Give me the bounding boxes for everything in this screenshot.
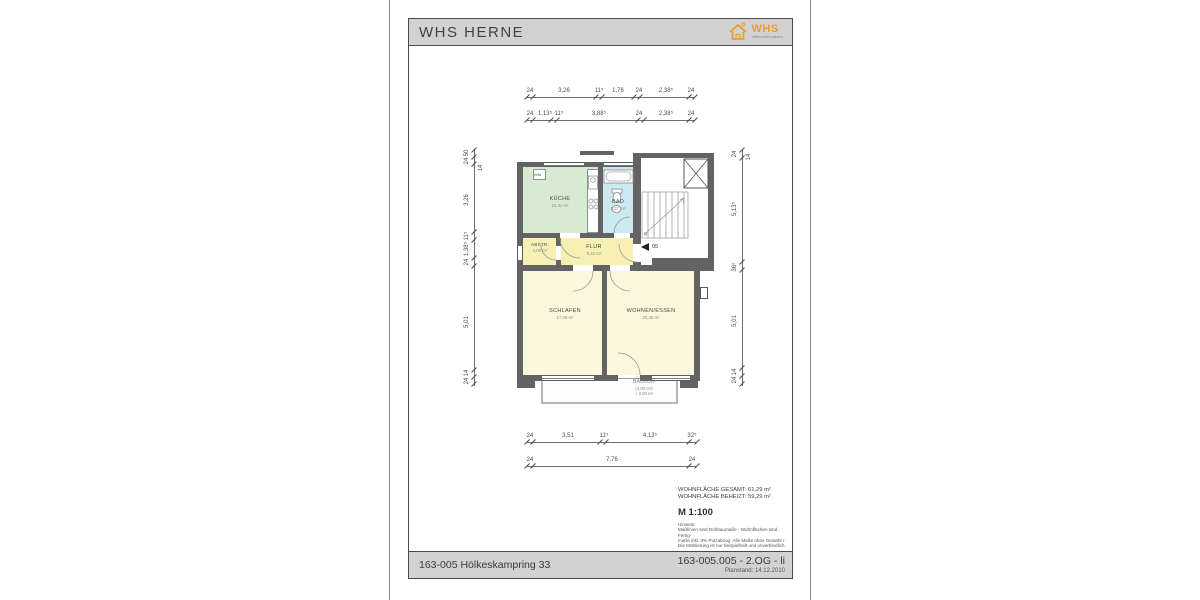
dim-line: [527, 442, 697, 443]
door-arcs: [541, 217, 640, 375]
dim-label: 24: [636, 88, 643, 94]
dim-label: 24: [464, 378, 470, 385]
entrance-door-marker: [641, 243, 649, 251]
dim-label: 3,26: [558, 88, 570, 94]
dim-label: 14: [478, 165, 484, 172]
dim-label: 3,88⁵: [592, 111, 606, 117]
kitchen-sink-icon: [589, 176, 598, 189]
room-label-abstr: ABSTR. 1,02 m²: [531, 242, 549, 253]
dim-label: 24: [636, 111, 643, 117]
room-label-bad: BAD 5,57 m²: [611, 199, 626, 211]
dim-label: 2,38⁵: [659, 88, 673, 94]
dim-label: 14: [464, 370, 470, 377]
dim-label: 24: [732, 377, 738, 384]
dim-line: [527, 466, 697, 467]
stairs-icon: [642, 192, 688, 238]
dim-label: 24: [527, 88, 534, 94]
dim-line: [474, 150, 475, 386]
room-label-flur: FLUR 5,22 m²: [586, 244, 602, 256]
door-number: 05: [652, 244, 658, 250]
note-line: Die Möblierung ist nur beispielhaft und …: [678, 543, 790, 548]
dim-label: 24: [732, 151, 738, 158]
elevator-icon: [684, 159, 708, 188]
note-line: Maßlinien sind Rohbaumaße - Wohnflächen …: [678, 527, 790, 538]
bathtub-icon: [604, 170, 633, 183]
dim-label: 5,01: [732, 315, 738, 327]
area-value: 61,29 m²: [748, 487, 771, 494]
dim-label: 3,51: [562, 433, 574, 439]
stove-icon: [589, 199, 598, 209]
dim-label: 24: [689, 457, 696, 463]
dim-label: 32⁵: [687, 433, 696, 439]
dim-label: 3,26: [464, 194, 470, 206]
room-label-balkon: BALKON (4,00 m²) + 2,00 m²: [633, 379, 655, 396]
dim-label: 14: [732, 369, 738, 376]
room-label-schlafen: SCHLAFEN 17,06 m²: [549, 308, 581, 320]
dim-label: 11⁵: [555, 111, 564, 117]
room-label-kueche: KÜCHE 10,31 m²: [550, 196, 571, 208]
dim-label: 7,76: [606, 457, 618, 463]
scale-label: M 1:100: [678, 507, 790, 518]
dim-label: 1,76: [612, 88, 624, 94]
dim-label: 5,01: [464, 316, 470, 328]
dim-label: 50: [464, 150, 470, 157]
dim-line: [527, 120, 695, 121]
dim-label: 11⁵: [595, 88, 604, 94]
dim-label: 5,13⁵: [732, 202, 738, 216]
area-row: WOHNFLÄCHE BEHEIZT: 59,29 m²: [678, 494, 790, 501]
dim-label: 24: [464, 259, 470, 266]
area-value: 59,29 m²: [748, 494, 771, 501]
dim-label: 24: [464, 158, 470, 165]
room-label-wohnen: WOHNEN/ESSEN 20,36 m²: [627, 308, 676, 320]
dim-line: [527, 97, 695, 98]
dim-label: 24: [688, 88, 695, 94]
dim-label: 4,13⁵: [643, 433, 657, 439]
dim-label: 24: [527, 433, 534, 439]
dim-label: 14: [746, 154, 752, 161]
area-summary: WOHNFLÄCHE GESAMT: 61,29 m² WOHNFLÄCHE B…: [678, 487, 790, 549]
dim-label: 11⁵: [464, 232, 470, 241]
dim-label: 1,38⁵: [464, 242, 470, 256]
dim-label: 1,13⁵: [538, 111, 552, 117]
dim-label: 36⁵: [732, 262, 738, 271]
dim-label: 2,38⁵: [659, 111, 673, 117]
dim-label: 24: [527, 111, 534, 117]
dim-label: 24: [527, 457, 534, 463]
dim-label: 24: [688, 111, 695, 117]
dim-label: 11⁵: [600, 433, 609, 439]
